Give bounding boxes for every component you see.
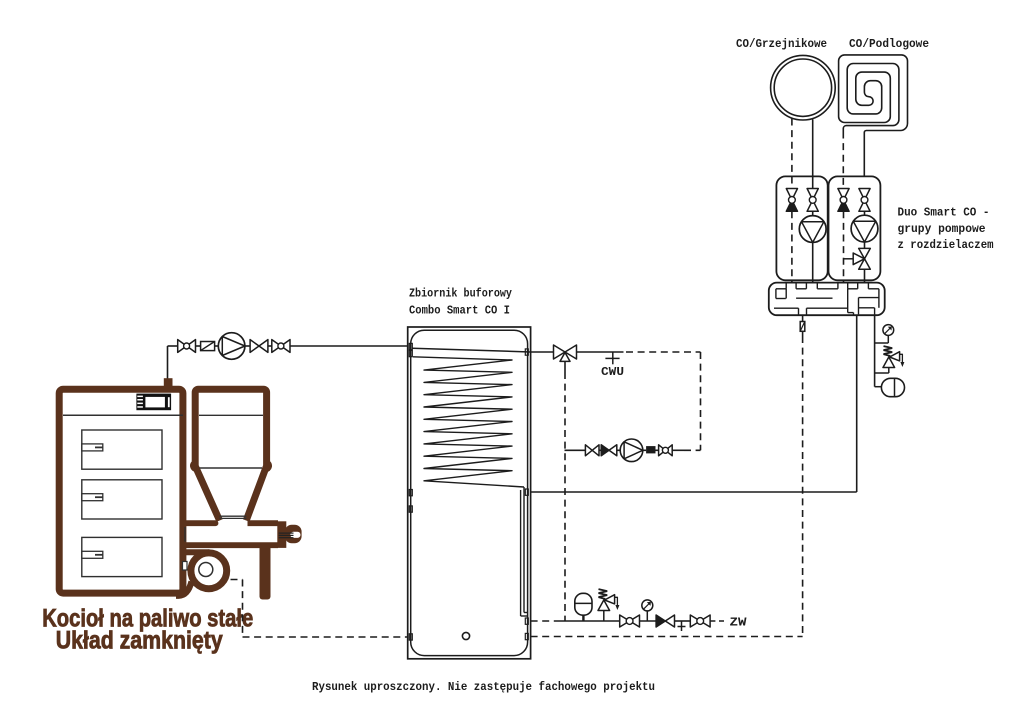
svg-text:ZW: ZW xyxy=(730,617,747,630)
svg-text:grupy pompowe: grupy pompowe xyxy=(898,223,986,236)
svg-text:CO/Grzejnikowe: CO/Grzejnikowe xyxy=(736,38,827,51)
svg-text:Duo Smart CO -: Duo Smart CO - xyxy=(898,207,990,220)
svg-text:Combo Smart CO I: Combo Smart CO I xyxy=(409,305,510,318)
svg-text:Układ zamknięty: Układ zamknięty xyxy=(56,627,223,655)
svg-text:CWU: CWU xyxy=(601,366,624,379)
svg-text:CO/Podlogowe: CO/Podlogowe xyxy=(849,38,929,51)
svg-text:Rysunek uproszczony. Nie zastę: Rysunek uproszczony. Nie zastępuje facho… xyxy=(312,681,655,694)
svg-text:z rozdzielaczem: z rozdzielaczem xyxy=(898,239,994,252)
svg-text:Zbiornik buforowy: Zbiornik buforowy xyxy=(409,288,512,301)
